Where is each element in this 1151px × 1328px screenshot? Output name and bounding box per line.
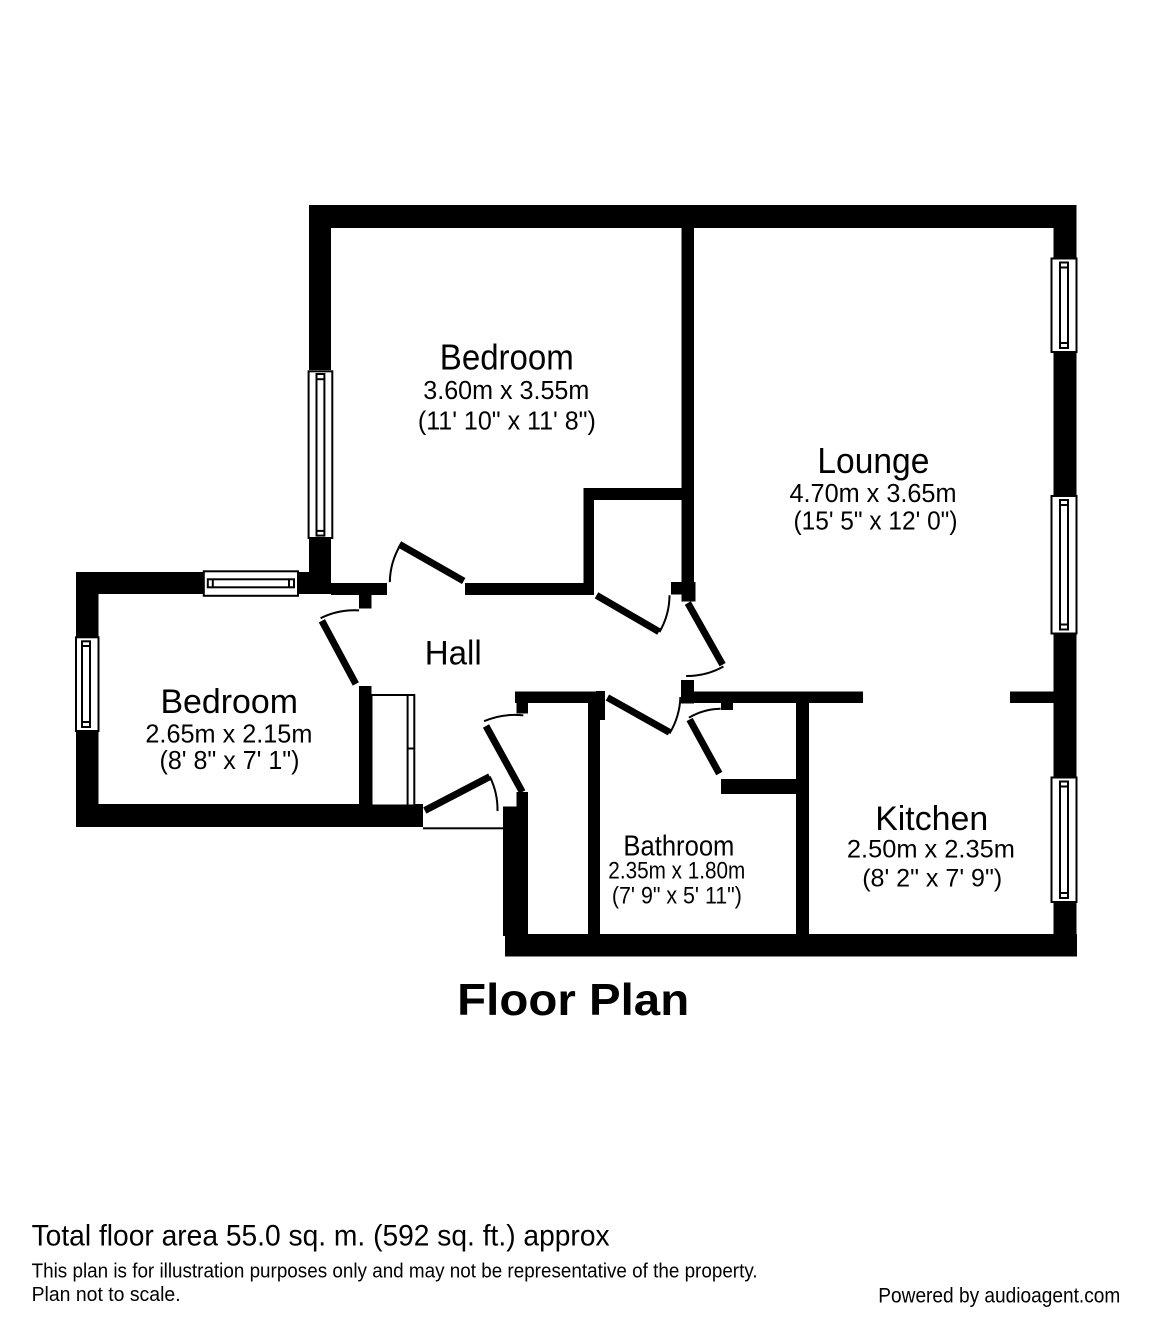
svg-text:4.70m x 3.65m: 4.70m x 3.65m bbox=[790, 480, 957, 508]
svg-text:Plan not to scale.: Plan not to scale. bbox=[32, 1284, 181, 1306]
svg-text:Kitchen: Kitchen bbox=[875, 800, 988, 838]
svg-text:2.50m x 2.35m: 2.50m x 2.35m bbox=[847, 836, 1015, 864]
svg-text:This plan is for illustration: This plan is for illustration purposes o… bbox=[32, 1261, 758, 1283]
svg-text:Bedroom: Bedroom bbox=[160, 683, 298, 721]
svg-text:(8' 2" x 7' 9"): (8' 2" x 7' 9") bbox=[862, 865, 1002, 893]
svg-text:2.35m x 1.80m: 2.35m x 1.80m bbox=[608, 857, 745, 884]
svg-text:Floor Plan: Floor Plan bbox=[457, 976, 689, 1025]
svg-text:Powered by audioagent.com: Powered by audioagent.com bbox=[878, 1285, 1120, 1308]
svg-text:(15' 5" x 12' 0"): (15' 5" x 12' 0") bbox=[794, 507, 958, 535]
svg-text:Bedroom: Bedroom bbox=[440, 337, 574, 378]
svg-text:(7' 9" x 5' 11"): (7' 9" x 5' 11") bbox=[612, 882, 742, 909]
svg-text:(11' 10" x 11' 8"): (11' 10" x 11' 8") bbox=[418, 408, 596, 436]
svg-text:2.65m x 2.15m: 2.65m x 2.15m bbox=[145, 718, 312, 748]
svg-text:Hall: Hall bbox=[425, 635, 482, 673]
svg-text:(8' 8" x 7' 1"): (8' 8" x 7' 1") bbox=[160, 745, 300, 775]
svg-text:Lounge: Lounge bbox=[817, 440, 929, 481]
svg-text:Total floor area 55.0 sq. m. (: Total floor area 55.0 sq. m. (592 sq. ft… bbox=[32, 1220, 610, 1253]
svg-text:3.60m x 3.55m: 3.60m x 3.55m bbox=[423, 377, 589, 405]
